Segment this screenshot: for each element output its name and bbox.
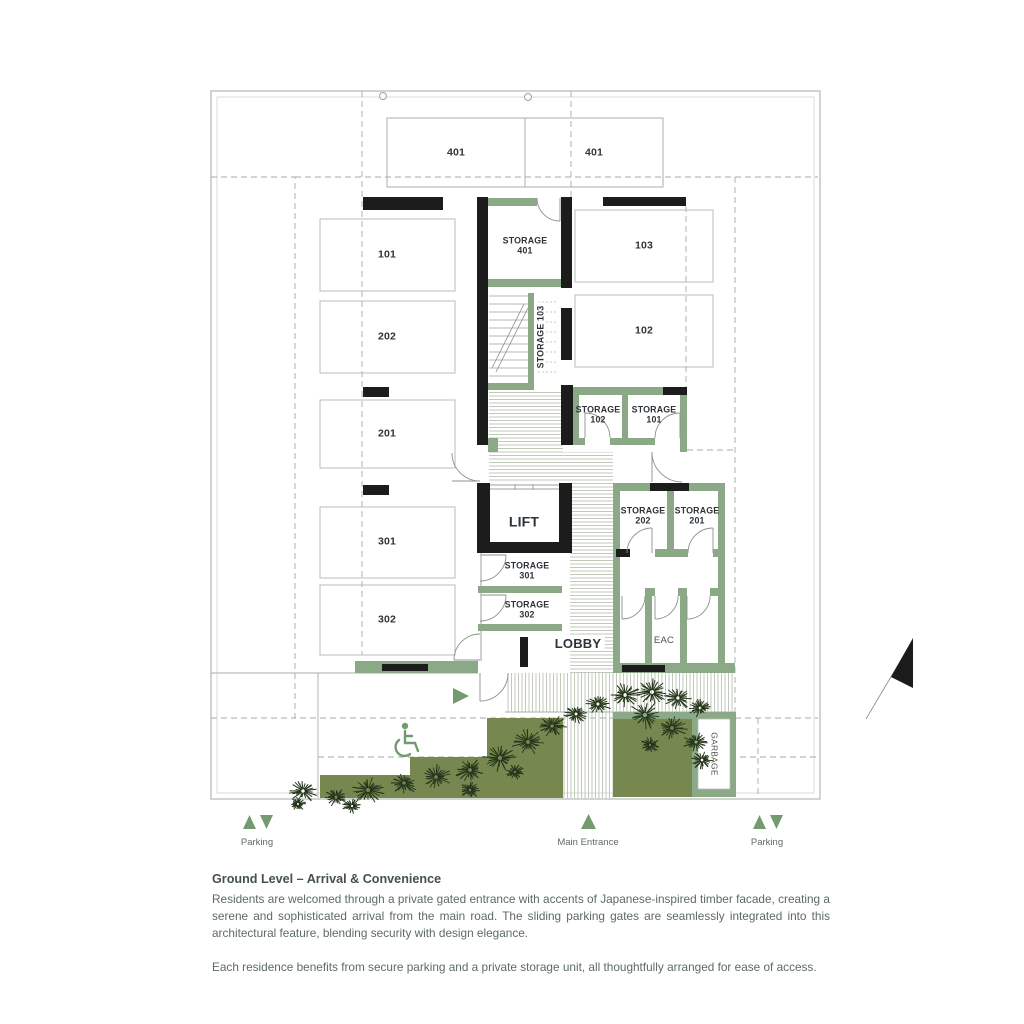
accessible-parking-icon	[396, 723, 418, 756]
entry-direction-arrow	[453, 688, 469, 704]
description-paragraph-1: Residents are welcomed through a private…	[212, 891, 830, 942]
legend-parking-right: Parking	[707, 833, 827, 848]
garbage-room	[698, 719, 730, 789]
legend-parking-right-label: Parking	[707, 837, 827, 848]
legend-arrows	[243, 814, 783, 829]
staircase	[489, 296, 556, 376]
description-heading: Ground Level – Arrival & Convenience	[212, 872, 830, 886]
legend-main-entrance-label: Main Entrance	[528, 837, 648, 848]
thin-walls	[481, 484, 559, 661]
legend-main-entrance: Main Entrance	[528, 833, 648, 848]
legend-parking-left: Parking	[197, 833, 317, 848]
floor-plan-canvas	[0, 0, 1024, 1024]
description-paragraph-2: Each residence benefits from secure park…	[212, 959, 830, 976]
description-block: Ground Level – Arrival & Convenience Res…	[212, 872, 830, 993]
floor-plan-page: 401401101202201301302103102STORAGE 401ST…	[0, 0, 1024, 1024]
legend-parking-left-label: Parking	[197, 837, 317, 848]
north-arrow-icon	[866, 638, 913, 719]
